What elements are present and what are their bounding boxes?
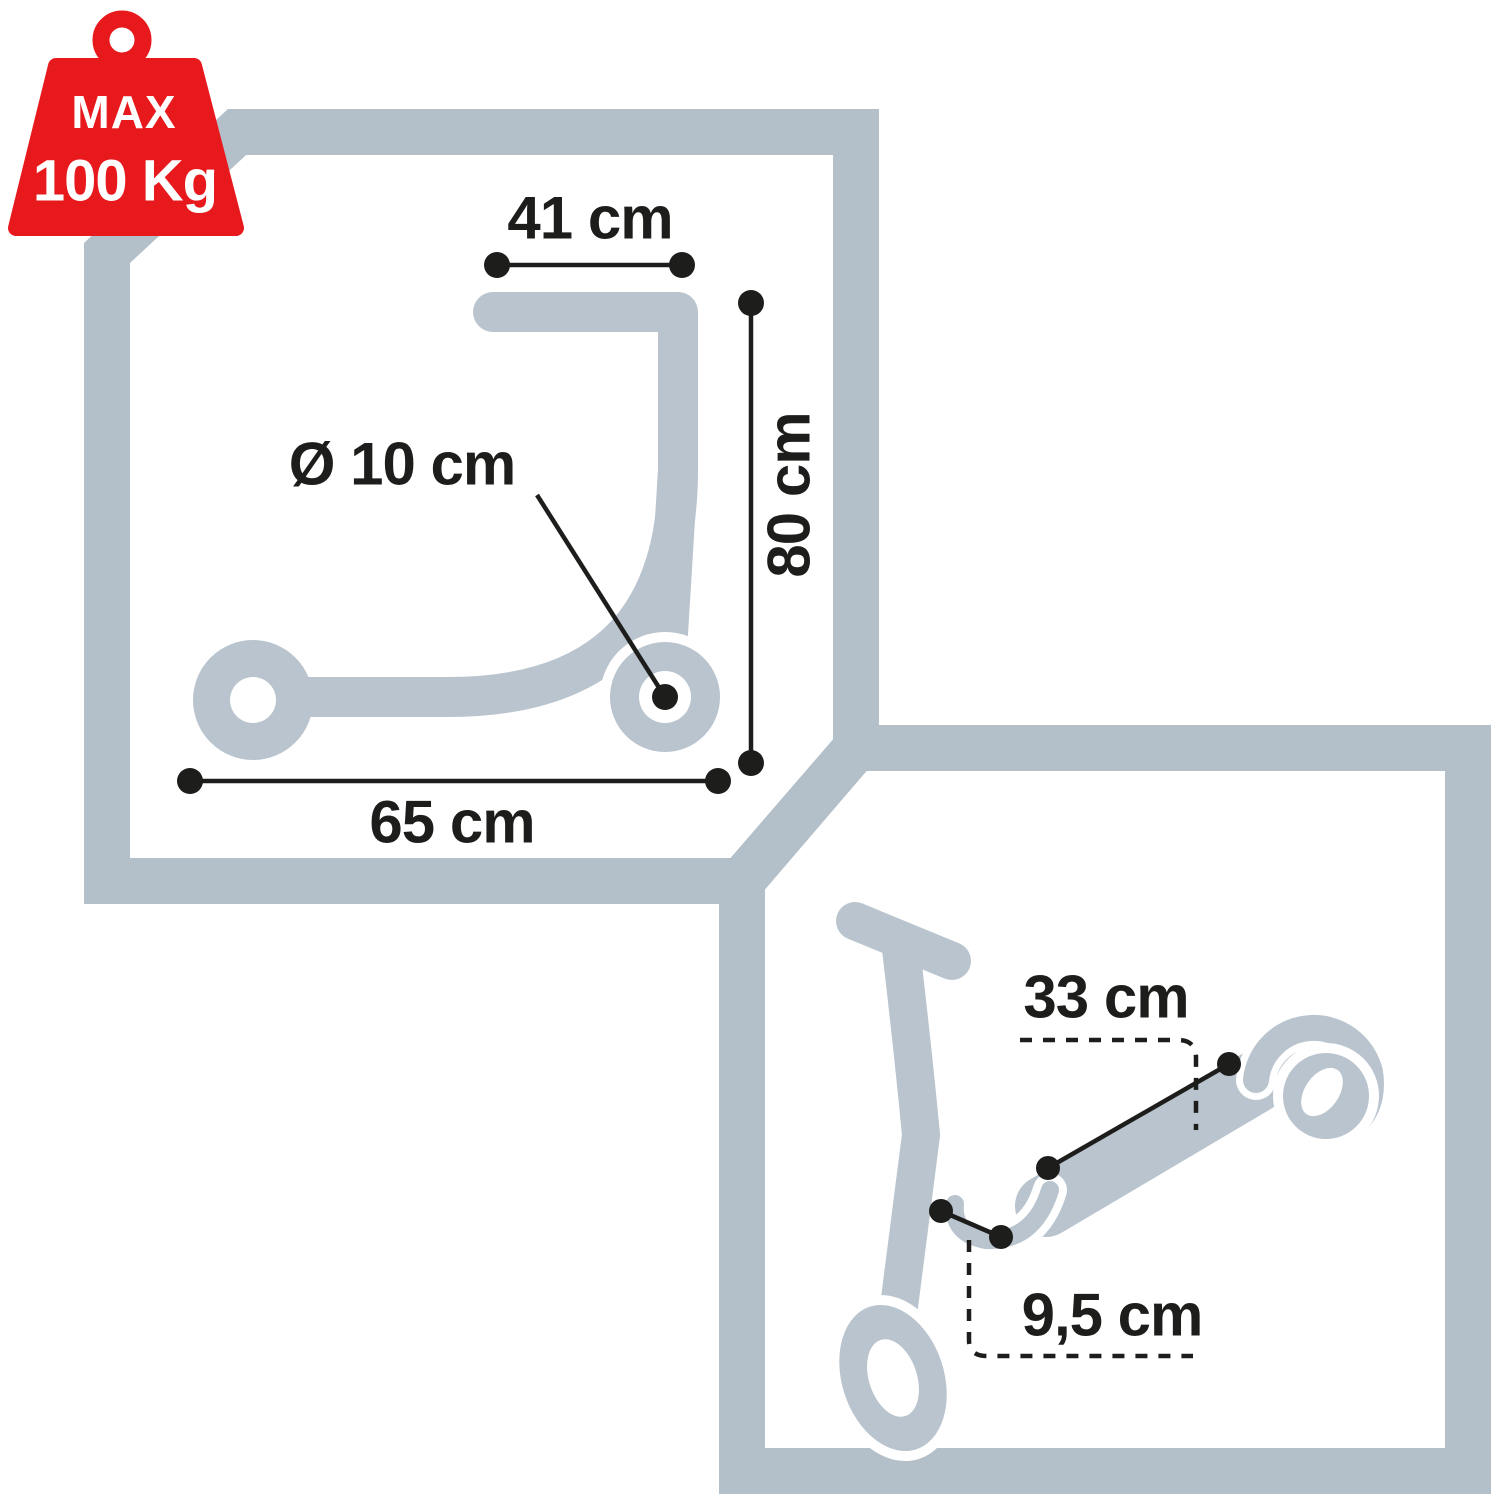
rear-hub-hole: [230, 677, 276, 723]
handlebar-width-label: 41 cm: [507, 184, 672, 253]
folded-deck-length-label: 33 cm: [1023, 963, 1188, 1032]
scooter-fork-shape: [667, 470, 678, 650]
folded-grip-shape: [855, 921, 952, 961]
max-weight-badge-line1: MAX: [71, 85, 176, 139]
folded-front-wheel: [815, 1285, 971, 1472]
max-weight-badge-line2: 100 Kg: [33, 148, 217, 215]
scooter-frame-shape: [253, 312, 678, 697]
folded-clearance-label: 9,5 cm: [1022, 1281, 1203, 1350]
height-label: 80 cm: [755, 412, 824, 577]
diagram-graphics: [0, 0, 1491, 1500]
dimension-infographic: 41 cm Ø 10 cm 80 cm 65 cm 33 cm 9,5 cm M…: [0, 0, 1491, 1500]
folded-stem-shape: [896, 940, 921, 1330]
wheel-diameter-label: Ø 10 cm: [289, 430, 515, 499]
dimension-41cm: [484, 252, 695, 278]
unfolded-scooter-silhouette: [193, 312, 725, 760]
length-label: 65 cm: [369, 788, 534, 857]
